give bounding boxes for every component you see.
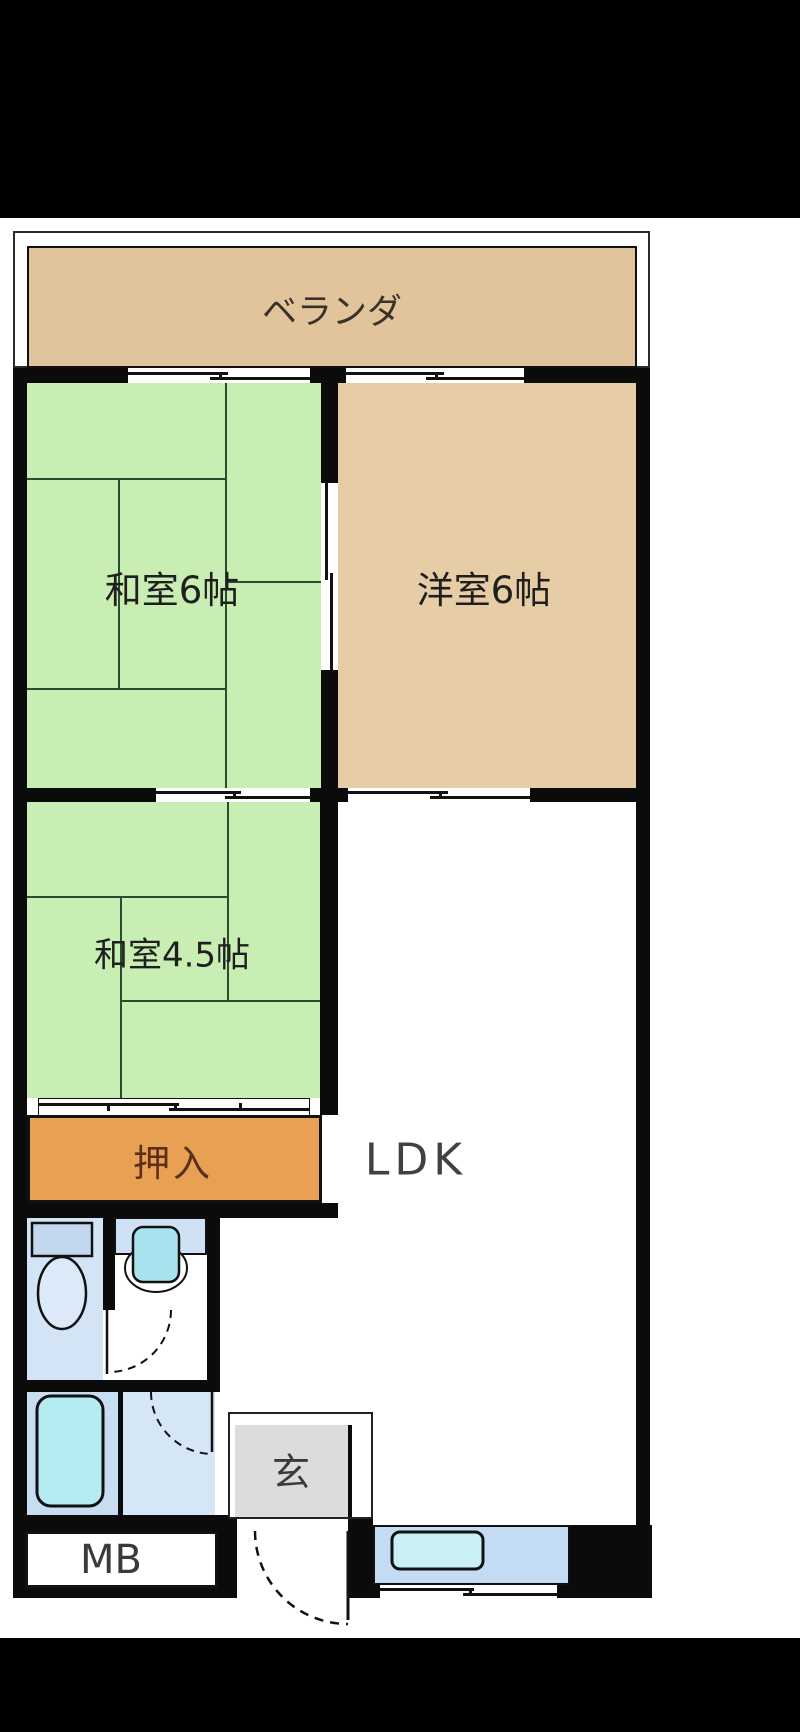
kitchen-window bbox=[380, 1585, 557, 1598]
kitchen-counter bbox=[373, 1525, 570, 1585]
genkan-divider bbox=[348, 1425, 352, 1517]
youshitsu6-label: 洋室6帖 bbox=[417, 560, 552, 614]
top-letterbox bbox=[0, 0, 800, 218]
toilet-room bbox=[27, 1218, 103, 1380]
tatami-line bbox=[120, 896, 122, 1098]
wall-bath-divider bbox=[118, 1392, 123, 1515]
wall-washroom-right bbox=[207, 1218, 220, 1392]
wall-middle-horizontal bbox=[13, 788, 650, 802]
tatami-line bbox=[27, 896, 229, 898]
washitsu45-label: 和室4.5帖 bbox=[94, 928, 250, 977]
wall-toilet-right bbox=[103, 1218, 115, 1310]
veranda-label: ベランダ bbox=[262, 284, 402, 335]
wall-below-closet bbox=[13, 1203, 338, 1218]
wall-washroom-bottom bbox=[27, 1380, 220, 1392]
tatami-line bbox=[120, 1000, 320, 1002]
wall-right-outer bbox=[636, 368, 650, 1598]
washitsu45-sliding-window bbox=[156, 788, 310, 802]
wall-bottom-mid bbox=[348, 1585, 380, 1598]
balcony-window-right bbox=[346, 368, 524, 383]
bathroom bbox=[27, 1392, 118, 1515]
wall-kitchen-right-corner bbox=[570, 1525, 652, 1598]
wall-bottom-left-band bbox=[13, 1515, 237, 1531]
wall-top bbox=[13, 368, 650, 383]
washroom bbox=[115, 1218, 207, 1392]
wall-washitsu45-ldk bbox=[320, 802, 338, 1115]
ldk-label: LDK bbox=[365, 1135, 467, 1186]
balcony-window-left bbox=[128, 368, 310, 383]
ldk-sliding-window bbox=[348, 788, 530, 802]
wall-entrance-left-pier bbox=[218, 1531, 237, 1598]
tatami-sliding-door-opening bbox=[321, 483, 338, 670]
shower-room bbox=[123, 1392, 215, 1515]
wall-kitchen-left-pier bbox=[348, 1515, 373, 1585]
closet-label: 押入 bbox=[133, 1133, 213, 1187]
washitsu6-label: 和室6帖 bbox=[105, 560, 240, 614]
wall-left-outer bbox=[13, 368, 27, 1598]
floor-plan-image: ベランダ bbox=[0, 0, 800, 1732]
entrance-door-swing bbox=[255, 1531, 348, 1624]
tatami-line bbox=[225, 581, 321, 583]
genkan-label: 玄 bbox=[272, 1442, 310, 1497]
tatami-line bbox=[27, 688, 227, 690]
tatami-line bbox=[27, 478, 227, 480]
bottom-letterbox bbox=[0, 1638, 800, 1732]
meter-box-label: MB bbox=[80, 1537, 142, 1583]
